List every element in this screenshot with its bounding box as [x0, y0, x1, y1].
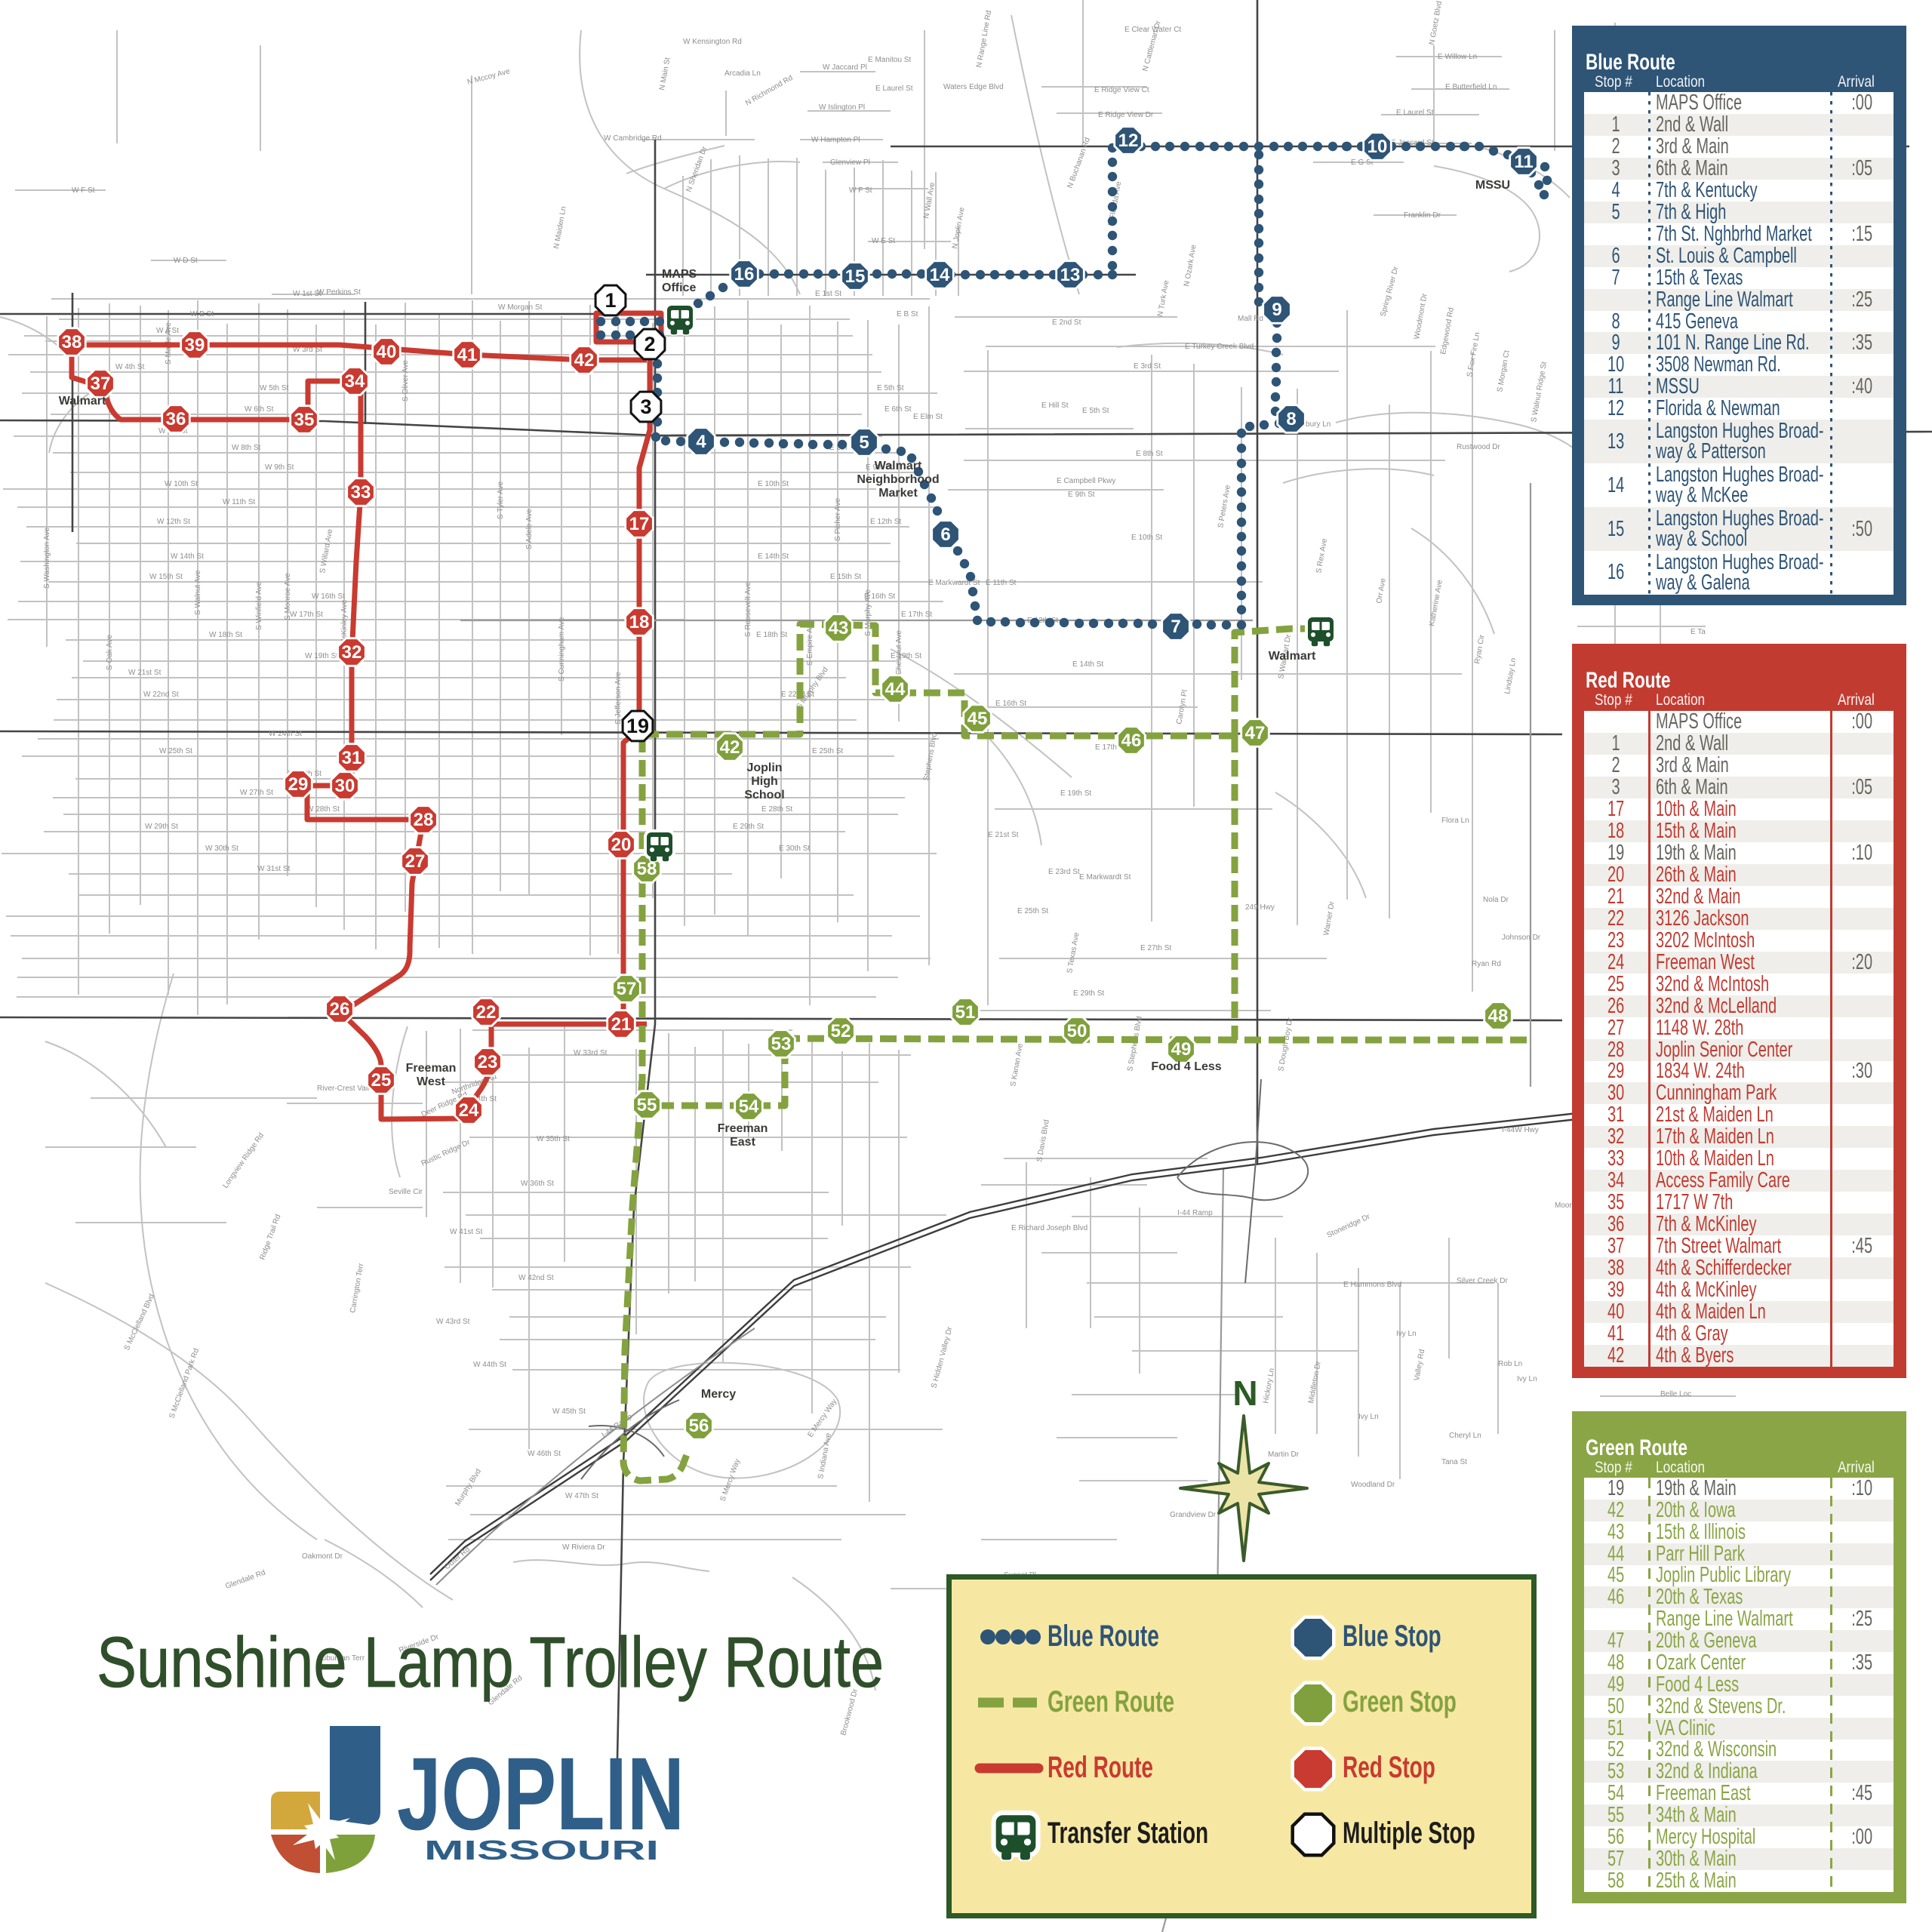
svg-text:45: 45: [968, 709, 988, 729]
svg-text:Walmart: Walmart: [59, 395, 106, 408]
svg-text:Rob Ln: Rob Ln: [1498, 1360, 1522, 1368]
svg-text:W 11th St: W 11th St: [223, 498, 255, 506]
svg-text:E Manitou St: E Manitou St: [868, 56, 911, 64]
svg-text:W 17th St: W 17th St: [290, 611, 323, 619]
svg-text:4: 4: [696, 432, 706, 452]
svg-text:I-44 Ramp: I-44 Ramp: [1177, 1209, 1213, 1217]
svg-text:E 8th St: E 8th St: [1136, 450, 1163, 458]
svg-text:Rustwood Dr: Rustwood Dr: [1457, 443, 1500, 451]
svg-text:W 42nd St: W 42nd St: [518, 1274, 554, 1282]
svg-text:19: 19: [626, 715, 649, 737]
svg-text:W 28th St: W 28th St: [306, 805, 340, 814]
svg-text:21: 21: [611, 1014, 632, 1035]
svg-text:S Roosevelt Ave: S Roosevelt Ave: [744, 581, 752, 637]
svg-text:W E St: W E St: [872, 237, 895, 245]
svg-text:2: 2: [644, 333, 655, 355]
svg-text:W 29th St: W 29th St: [145, 823, 178, 831]
svg-text:1: 1: [605, 289, 616, 312]
svg-text:E Turkey Creek Blvd: E Turkey Creek Blvd: [1185, 343, 1254, 351]
svg-text:S Cunningham Ave: S Cunningham Ave: [558, 617, 566, 681]
svg-text:17: 17: [629, 514, 650, 534]
svg-text:W 45th St: W 45th St: [552, 1407, 586, 1416]
svg-text:E Laurel St: E Laurel St: [1396, 109, 1434, 117]
svg-text:Mall Rd: Mall Rd: [1238, 315, 1263, 323]
svg-text:W 33rd St: W 33rd St: [574, 1049, 608, 1057]
svg-text:E Hill St: E Hill St: [1041, 401, 1069, 410]
svg-text:E 16th St: E 16th St: [864, 592, 895, 601]
svg-text:E 10th St: E 10th St: [1131, 534, 1162, 542]
svg-text:E Jaccard St: E Jaccard St: [1391, 139, 1434, 147]
svg-text:S Washington Ave: S Washington Ave: [43, 527, 51, 589]
svg-text:31: 31: [342, 748, 362, 768]
svg-text:E 29th St: E 29th St: [1073, 989, 1104, 998]
svg-text:22: 22: [476, 1002, 497, 1023]
svg-text:S Adele Ave: S Adele Ave: [525, 509, 534, 549]
svg-text:Ivy Ln: Ivy Ln: [1517, 1375, 1537, 1383]
svg-text:W 21st St: W 21st St: [128, 669, 162, 677]
svg-text:E 25th St: E 25th St: [812, 747, 843, 755]
svg-text:Ryan Rd: Ryan Rd: [1472, 960, 1501, 968]
svg-text:E Ridge View Dr: E Ridge View Dr: [1098, 111, 1154, 119]
svg-text:Woodland Dr: Woodland Dr: [1351, 1481, 1395, 1489]
svg-text:W D St: W D St: [174, 257, 198, 265]
svg-text:E Hammons Blvd: E Hammons Blvd: [1343, 1281, 1401, 1289]
svg-text:20: 20: [611, 835, 632, 855]
svg-text:W Perkins St: W Perkins St: [317, 288, 361, 297]
svg-text:13: 13: [1060, 265, 1081, 285]
svg-text:6: 6: [940, 525, 950, 545]
svg-text:S Tyler Ave: S Tyler Ave: [497, 481, 505, 519]
svg-text:E 14th St: E 14th St: [1072, 660, 1103, 669]
svg-text:N: N: [1232, 1374, 1257, 1413]
svg-text:50: 50: [1067, 1021, 1088, 1041]
svg-text:MSSU: MSSU: [1475, 179, 1510, 192]
svg-text:5: 5: [859, 432, 869, 453]
svg-text:E 14th St: E 14th St: [758, 552, 789, 561]
svg-text:18: 18: [629, 612, 650, 632]
svg-text:42: 42: [720, 737, 740, 758]
svg-text:E 28th St: E 28th St: [761, 805, 792, 814]
svg-text:E Ta: E Ta: [1690, 628, 1706, 636]
svg-text:E Campbell Pkwy: E Campbell Pkwy: [1057, 477, 1115, 485]
svg-text:30: 30: [335, 776, 355, 796]
svg-text:E 18th St: E 18th St: [756, 631, 787, 639]
svg-text:47: 47: [1245, 723, 1266, 743]
svg-text:MISSOURI: MISSOURI: [424, 1835, 659, 1866]
svg-text:29: 29: [288, 774, 309, 795]
svg-text:E 29th St: E 29th St: [733, 823, 764, 831]
svg-text:W 6th St: W 6th St: [245, 405, 274, 414]
svg-text:24: 24: [459, 1100, 479, 1121]
svg-text:E 6th St: E 6th St: [884, 405, 912, 414]
svg-text:E 12th St: E 12th St: [870, 518, 901, 526]
svg-text:15: 15: [845, 266, 866, 287]
svg-text:Franklin Dr: Franklin Dr: [1404, 211, 1441, 220]
svg-text:E 25th St: E 25th St: [1017, 907, 1048, 915]
svg-text:Food 4 Less: Food 4 Less: [1151, 1060, 1221, 1073]
svg-text:W 19th St: W 19th St: [305, 652, 338, 660]
svg-text:W 35th St: W 35th St: [537, 1135, 570, 1143]
svg-text:E 2nd St: E 2nd St: [1052, 318, 1081, 327]
svg-text:Flora Ln: Flora Ln: [1441, 817, 1469, 825]
svg-text:Arcadia Ln: Arcadia Ln: [724, 69, 761, 78]
svg-text:S Oak Ave: S Oak Ave: [106, 634, 114, 670]
svg-text:W 22nd St: W 22nd St: [143, 691, 179, 699]
svg-text:Belle Loc: Belle Loc: [1660, 1390, 1691, 1398]
svg-text:W 5th St: W 5th St: [260, 384, 289, 392]
svg-text:16: 16: [734, 264, 755, 285]
svg-text:E 5th St: E 5th St: [877, 384, 904, 392]
svg-text:W 9th St: W 9th St: [265, 463, 294, 472]
svg-text:12: 12: [1118, 131, 1139, 151]
svg-text:Walmart: Walmart: [1269, 650, 1316, 663]
svg-text:Johnson Dr: Johnson Dr: [1502, 934, 1541, 942]
svg-text:W 44th St: W 44th St: [473, 1361, 506, 1369]
svg-text:E 27th St: E 27th St: [1140, 944, 1171, 952]
svg-text:38: 38: [62, 332, 82, 352]
svg-text:E 16th St: E 16th St: [995, 700, 1026, 708]
svg-text:W 30th St: W 30th St: [205, 844, 238, 853]
svg-text:S Winfield Ave: S Winfield Ave: [255, 581, 263, 630]
svg-text:55: 55: [637, 1095, 657, 1115]
svg-text:W Riviera Dr: W Riviera Dr: [562, 1543, 605, 1552]
svg-text:W 16th St: W 16th St: [312, 592, 345, 601]
svg-text:W F St: W F St: [849, 186, 872, 195]
svg-text:14: 14: [930, 265, 950, 285]
svg-text:43: 43: [829, 618, 849, 638]
svg-text:W Jaccard Pl: W Jaccard Pl: [823, 63, 867, 72]
svg-text:Silver Creek Dr: Silver Creek Dr: [1457, 1277, 1508, 1285]
svg-text:54: 54: [739, 1097, 759, 1117]
svg-text:41: 41: [457, 345, 478, 365]
svg-text:E 10th St: E 10th St: [758, 480, 789, 488]
svg-text:E Willow Ln: E Willow Ln: [1438, 53, 1477, 61]
svg-text:W Kensington Rd: W Kensington Rd: [683, 38, 742, 46]
svg-text:E 23rd St: E 23rd St: [1048, 868, 1080, 876]
svg-text:W Morgan St: W Morgan St: [498, 303, 543, 312]
svg-text:W 24th St: W 24th St: [269, 730, 302, 738]
svg-text:Oakmont Dr: Oakmont Dr: [302, 1552, 343, 1561]
svg-text:48: 48: [1488, 1006, 1509, 1026]
svg-text:33: 33: [351, 482, 371, 503]
svg-text:Ivy Ln: Ivy Ln: [1358, 1413, 1379, 1421]
svg-text:25: 25: [371, 1070, 392, 1091]
svg-text:32: 32: [342, 642, 362, 663]
svg-text:E B St: E B St: [897, 310, 918, 318]
svg-text:49: 49: [1171, 1039, 1192, 1060]
svg-text:34: 34: [345, 371, 365, 392]
svg-text:35: 35: [294, 410, 315, 430]
svg-text:E 11th St: E 11th St: [986, 579, 1017, 587]
svg-text:42: 42: [574, 350, 595, 371]
svg-text:53: 53: [771, 1034, 792, 1054]
svg-text:7: 7: [1171, 617, 1180, 637]
svg-text:Martin Dr: Martin Dr: [1268, 1451, 1300, 1459]
svg-text:I-44W Hwy: I-44W Hwy: [1502, 1126, 1539, 1134]
svg-text:39: 39: [185, 335, 205, 355]
svg-text:E 3rd St: E 3rd St: [1134, 362, 1161, 371]
svg-text:E Elm St: E Elm St: [913, 413, 943, 421]
svg-text:Seville Cir: Seville Cir: [389, 1188, 423, 1196]
svg-text:44: 44: [885, 679, 906, 700]
svg-text:E 1st St: E 1st St: [815, 290, 841, 298]
svg-text:37: 37: [91, 374, 111, 394]
svg-text:46: 46: [1121, 731, 1142, 751]
svg-text:W 8th St: W 8th St: [232, 444, 261, 452]
svg-text:W 43rd St: W 43rd St: [436, 1318, 470, 1326]
svg-text:E Butterfield Ln: E Butterfield Ln: [1445, 83, 1497, 91]
svg-text:E 19th St: E 19th St: [891, 652, 921, 660]
svg-text:E Richard Joseph Blvd: E Richard Joseph Blvd: [1011, 1224, 1088, 1232]
svg-text:W 18th St: W 18th St: [209, 631, 242, 639]
svg-text:Mercy: Mercy: [701, 1388, 736, 1401]
svg-text:W 41st St: W 41st St: [450, 1228, 483, 1236]
svg-text:E 9th St: E 9th St: [1068, 491, 1095, 499]
svg-text:Nola Dr: Nola Dr: [1483, 896, 1509, 904]
svg-text:S Jefferson Ave: S Jefferson Ave: [614, 672, 623, 724]
svg-text:E 21st St: E 21st St: [988, 831, 1019, 839]
svg-text:E 15th St: E 15th St: [830, 573, 861, 581]
svg-text:Tana St: Tana St: [1441, 1458, 1467, 1466]
svg-text:W Islington Pl: W Islington Pl: [819, 103, 865, 112]
svg-text:E 30th St: E 30th St: [779, 844, 810, 853]
svg-text:26: 26: [330, 999, 350, 1020]
svg-text:51: 51: [955, 1002, 976, 1023]
svg-text:W Cambridge Rd: W Cambridge Rd: [604, 134, 662, 143]
svg-text:56: 56: [689, 1416, 709, 1436]
svg-text:Waters Edge Blvd: Waters Edge Blvd: [943, 83, 1004, 91]
svg-text:E 19th St: E 19th St: [1060, 789, 1091, 798]
svg-text:MAPSOffice: MAPSOffice: [662, 268, 697, 294]
svg-text:W 12th St: W 12th St: [157, 518, 190, 526]
svg-text:E Markwardt St: E Markwardt St: [1079, 873, 1131, 881]
svg-text:W 36th St: W 36th St: [521, 1180, 554, 1188]
svg-text:W 27th St: W 27th St: [240, 789, 273, 797]
svg-text:W 31st St: W 31st St: [257, 865, 291, 873]
svg-text:S Oliver Ave: S Oliver Ave: [401, 360, 410, 401]
svg-text:W 46th St: W 46th St: [528, 1450, 561, 1458]
svg-text:W 15th St: W 15th St: [149, 573, 183, 581]
svg-text:Ivy Ln: Ivy Ln: [1396, 1330, 1417, 1338]
svg-text:E 17th St: E 17th St: [901, 611, 932, 619]
svg-text:27: 27: [405, 851, 426, 872]
svg-text:E Ridge View Ct: E Ridge View Ct: [1094, 86, 1149, 94]
svg-text:S Picher Ave: S Picher Ave: [834, 497, 842, 541]
svg-text:W F St: W F St: [72, 186, 95, 195]
svg-text:W B St: W B St: [190, 310, 214, 318]
svg-text:E 5th St: E 5th St: [1082, 407, 1109, 415]
svg-text:W A St: W A St: [156, 327, 179, 335]
svg-text:Grandview Dr: Grandview Dr: [1170, 1511, 1217, 1519]
svg-text:10: 10: [1367, 137, 1388, 157]
svg-text:W Hampton Pl: W Hampton Pl: [811, 136, 860, 144]
svg-text:57: 57: [617, 979, 637, 999]
svg-text:S Walnut Ave: S Walnut Ave: [194, 570, 202, 615]
svg-text:23: 23: [478, 1052, 498, 1072]
svg-text:Glenview Pl: Glenview Pl: [830, 158, 870, 167]
svg-text:8: 8: [1286, 409, 1296, 429]
svg-text:W 14th St: W 14th St: [171, 552, 204, 561]
svg-text:52: 52: [831, 1021, 851, 1041]
svg-text:Cheryl Ln: Cheryl Ln: [1449, 1432, 1481, 1440]
svg-text:9: 9: [1272, 300, 1281, 320]
svg-text:28: 28: [414, 810, 434, 830]
svg-text:W 4th St: W 4th St: [115, 363, 145, 371]
svg-text:W 10th St: W 10th St: [165, 480, 198, 488]
svg-text:249 Hwy: 249 Hwy: [1245, 903, 1275, 912]
svg-text:W 25th St: W 25th St: [159, 747, 192, 755]
svg-text:3: 3: [640, 395, 651, 418]
svg-text:E Laurel St: E Laurel St: [875, 85, 913, 93]
svg-text:11: 11: [1514, 152, 1533, 172]
svg-text:40: 40: [377, 342, 397, 362]
svg-text:W 47th St: W 47th St: [565, 1492, 598, 1500]
svg-text:36: 36: [166, 409, 186, 429]
